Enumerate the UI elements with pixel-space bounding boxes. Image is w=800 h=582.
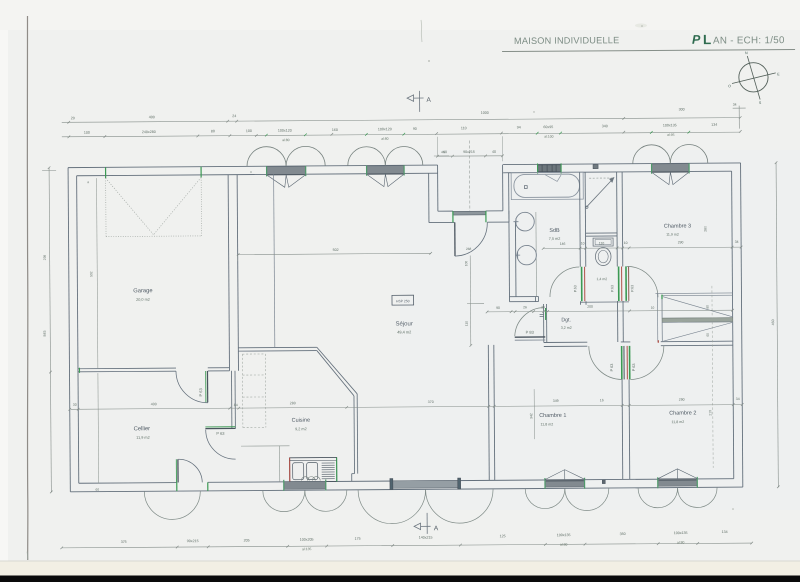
svg-text:134: 134 xyxy=(711,123,717,127)
svg-text:Cellier: Cellier xyxy=(134,426,151,432)
svg-text:210: 210 xyxy=(708,410,712,416)
svg-text:370: 370 xyxy=(428,400,434,404)
svg-text:P 63: P 63 xyxy=(632,363,636,371)
svg-text:AN - ECH: 1/50: AN - ECH: 1/50 xyxy=(713,35,785,47)
svg-text:80: 80 xyxy=(706,305,710,309)
svg-text:al:100: al:100 xyxy=(544,135,553,139)
svg-text:P.63: P.63 xyxy=(610,285,614,292)
svg-text:342: 342 xyxy=(529,413,533,419)
svg-text:290: 290 xyxy=(678,240,684,244)
svg-text:al:80: al:80 xyxy=(282,138,289,142)
svg-text:400: 400 xyxy=(149,115,155,119)
svg-text:P.63: P.63 xyxy=(630,285,634,292)
svg-text:110: 110 xyxy=(599,241,605,245)
svg-text:P 63: P 63 xyxy=(216,431,225,436)
svg-text:400: 400 xyxy=(151,402,157,406)
svg-text:90: 90 xyxy=(413,127,417,131)
svg-text:350: 350 xyxy=(620,532,626,536)
svg-text:134: 134 xyxy=(722,530,728,534)
svg-text:11,9 m2: 11,9 m2 xyxy=(136,436,149,440)
svg-text:3,2 m2: 3,2 m2 xyxy=(561,326,572,330)
svg-text:110: 110 xyxy=(461,126,467,130)
svg-text:al:80: al:80 xyxy=(677,541,684,545)
svg-text:375: 375 xyxy=(121,540,127,544)
svg-text:200: 200 xyxy=(587,305,593,309)
svg-text:349: 349 xyxy=(553,399,559,403)
svg-text:20,0 m2: 20,0 m2 xyxy=(136,298,150,302)
svg-text:205: 205 xyxy=(244,538,250,542)
svg-text:100x135: 100x135 xyxy=(557,533,571,537)
svg-text:34: 34 xyxy=(736,397,740,401)
svg-text:84: 84 xyxy=(234,403,238,407)
svg-text:100x135: 100x135 xyxy=(663,123,677,127)
svg-text:90x215: 90x215 xyxy=(187,539,199,543)
svg-text:26: 26 xyxy=(523,305,527,309)
svg-text:100x120: 100x120 xyxy=(278,129,292,133)
svg-text:11,8 m2: 11,8 m2 xyxy=(671,420,684,424)
svg-text:60: 60 xyxy=(706,333,710,337)
svg-text:N: N xyxy=(745,51,748,55)
svg-text:Chambre 3: Chambre 3 xyxy=(664,223,691,229)
svg-text:268: 268 xyxy=(466,247,472,251)
svg-text:460: 460 xyxy=(771,319,775,325)
svg-text:845: 845 xyxy=(43,330,47,336)
svg-text:240x280: 240x280 xyxy=(142,130,156,134)
svg-text:34: 34 xyxy=(735,240,739,244)
svg-text:10: 10 xyxy=(624,241,628,245)
svg-text:a: a xyxy=(87,180,89,184)
svg-text:Chambre 2: Chambre 2 xyxy=(669,410,696,416)
svg-text:24: 24 xyxy=(232,114,236,118)
svg-text:P: P xyxy=(692,33,701,47)
svg-text:al:95: al:95 xyxy=(667,133,674,137)
svg-text:O: O xyxy=(728,84,731,88)
svg-text:Dgt.: Dgt. xyxy=(561,317,571,323)
svg-text:A: A xyxy=(434,525,439,532)
svg-text:280: 280 xyxy=(290,401,296,405)
svg-text:P.63: P.63 xyxy=(573,285,577,292)
svg-text:30: 30 xyxy=(73,403,77,407)
svg-text:MAISON INDIVIDUELLE: MAISON INDIVIDUELLE xyxy=(514,35,619,46)
svg-text:1000: 1000 xyxy=(481,111,489,115)
svg-text:20: 20 xyxy=(71,116,75,120)
svg-text:10: 10 xyxy=(651,306,655,310)
svg-text:80: 80 xyxy=(211,129,215,133)
svg-text:45: 45 xyxy=(441,150,445,154)
svg-text:10: 10 xyxy=(581,242,585,246)
svg-text:al:80: al:80 xyxy=(560,543,567,547)
svg-text:P 83: P 83 xyxy=(526,330,535,335)
svg-text:9,2 m2: 9,2 m2 xyxy=(295,427,307,431)
svg-text:100: 100 xyxy=(84,131,90,135)
svg-text:P 63: P 63 xyxy=(610,364,614,372)
svg-text:300: 300 xyxy=(679,108,685,112)
svg-text:140x215: 140x215 xyxy=(419,536,433,540)
svg-text:al:80: al:80 xyxy=(381,137,388,141)
svg-text:60: 60 xyxy=(96,488,100,492)
svg-text:Cuisine: Cuisine xyxy=(292,418,310,424)
svg-text:298: 298 xyxy=(43,255,47,261)
svg-text:HSP 250: HSP 250 xyxy=(396,299,410,303)
svg-text:SdB: SdB xyxy=(549,228,560,234)
svg-text:11,8 m2: 11,8 m2 xyxy=(540,422,553,426)
svg-text:340: 340 xyxy=(602,124,608,128)
svg-text:100x135: 100x135 xyxy=(674,531,688,535)
svg-text:94: 94 xyxy=(517,125,521,129)
svg-text:125: 125 xyxy=(500,534,506,538)
svg-text:100: 100 xyxy=(464,261,468,267)
svg-text:Garage: Garage xyxy=(133,288,152,294)
svg-text:L: L xyxy=(703,32,711,47)
svg-text:49,4 m2: 49,4 m2 xyxy=(397,329,411,334)
svg-text:502: 502 xyxy=(333,248,339,252)
svg-text:16: 16 xyxy=(600,398,604,402)
svg-text:60x95: 60x95 xyxy=(543,125,553,129)
svg-text:1,4 m2: 1,4 m2 xyxy=(596,277,607,281)
svg-text:100x120: 100x120 xyxy=(378,127,392,131)
svg-text:40: 40 xyxy=(492,150,496,154)
svg-text:90: 90 xyxy=(496,306,500,310)
svg-text:26: 26 xyxy=(541,305,545,309)
svg-text:11,9 m2: 11,9 m2 xyxy=(666,233,679,237)
svg-text:34: 34 xyxy=(733,103,737,107)
svg-text:160: 160 xyxy=(332,128,338,132)
svg-text:Séjour: Séjour xyxy=(395,321,412,327)
svg-text:100: 100 xyxy=(246,129,252,133)
svg-text:290: 290 xyxy=(679,398,685,402)
svg-text:110: 110 xyxy=(465,321,469,326)
svg-text:Chambre 1: Chambre 1 xyxy=(539,413,566,419)
svg-text:146: 146 xyxy=(560,242,566,246)
svg-text:7,5 m2: 7,5 m2 xyxy=(549,237,561,241)
svg-text:175: 175 xyxy=(355,537,361,541)
svg-text:100x205: 100x205 xyxy=(300,538,314,542)
svg-text:P 63: P 63 xyxy=(198,388,203,397)
svg-text:90x215: 90x215 xyxy=(463,150,475,154)
svg-text:al:135: al:135 xyxy=(302,547,311,551)
svg-text:502: 502 xyxy=(89,271,93,277)
svg-text:A: A xyxy=(426,97,431,104)
svg-text:280: 280 xyxy=(703,226,707,232)
